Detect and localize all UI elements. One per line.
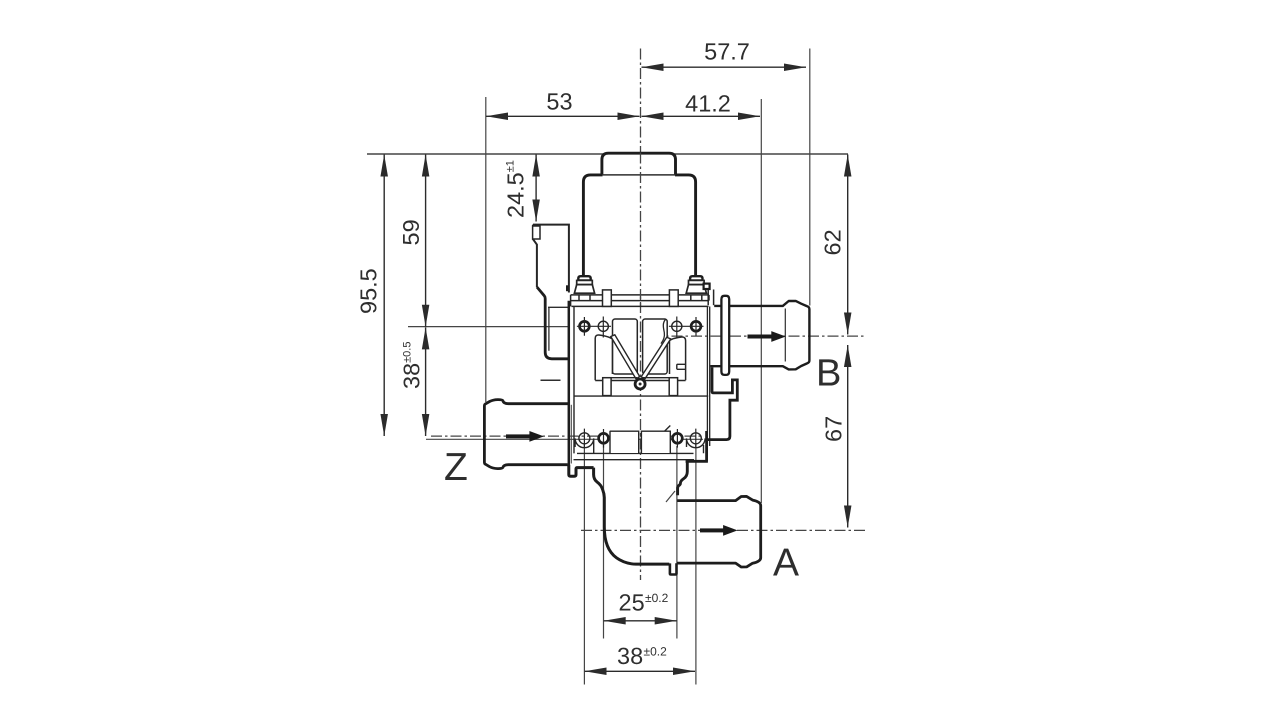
- svg-text:67: 67: [821, 416, 847, 442]
- svg-text:53: 53: [546, 88, 572, 114]
- svg-text:59: 59: [398, 219, 424, 245]
- svg-text:±0.2: ±0.2: [645, 591, 669, 605]
- svg-text:57.7: 57.7: [704, 38, 750, 64]
- svg-text:B: B: [816, 353, 841, 395]
- svg-text:25: 25: [618, 590, 644, 616]
- svg-text:62: 62: [820, 229, 846, 255]
- svg-text:±0.2: ±0.2: [643, 645, 667, 659]
- svg-text:38: 38: [617, 643, 643, 669]
- svg-text:A: A: [773, 542, 799, 585]
- svg-text:95.5: 95.5: [356, 268, 382, 314]
- svg-text:Z: Z: [444, 446, 468, 489]
- svg-text:41.2: 41.2: [685, 90, 731, 116]
